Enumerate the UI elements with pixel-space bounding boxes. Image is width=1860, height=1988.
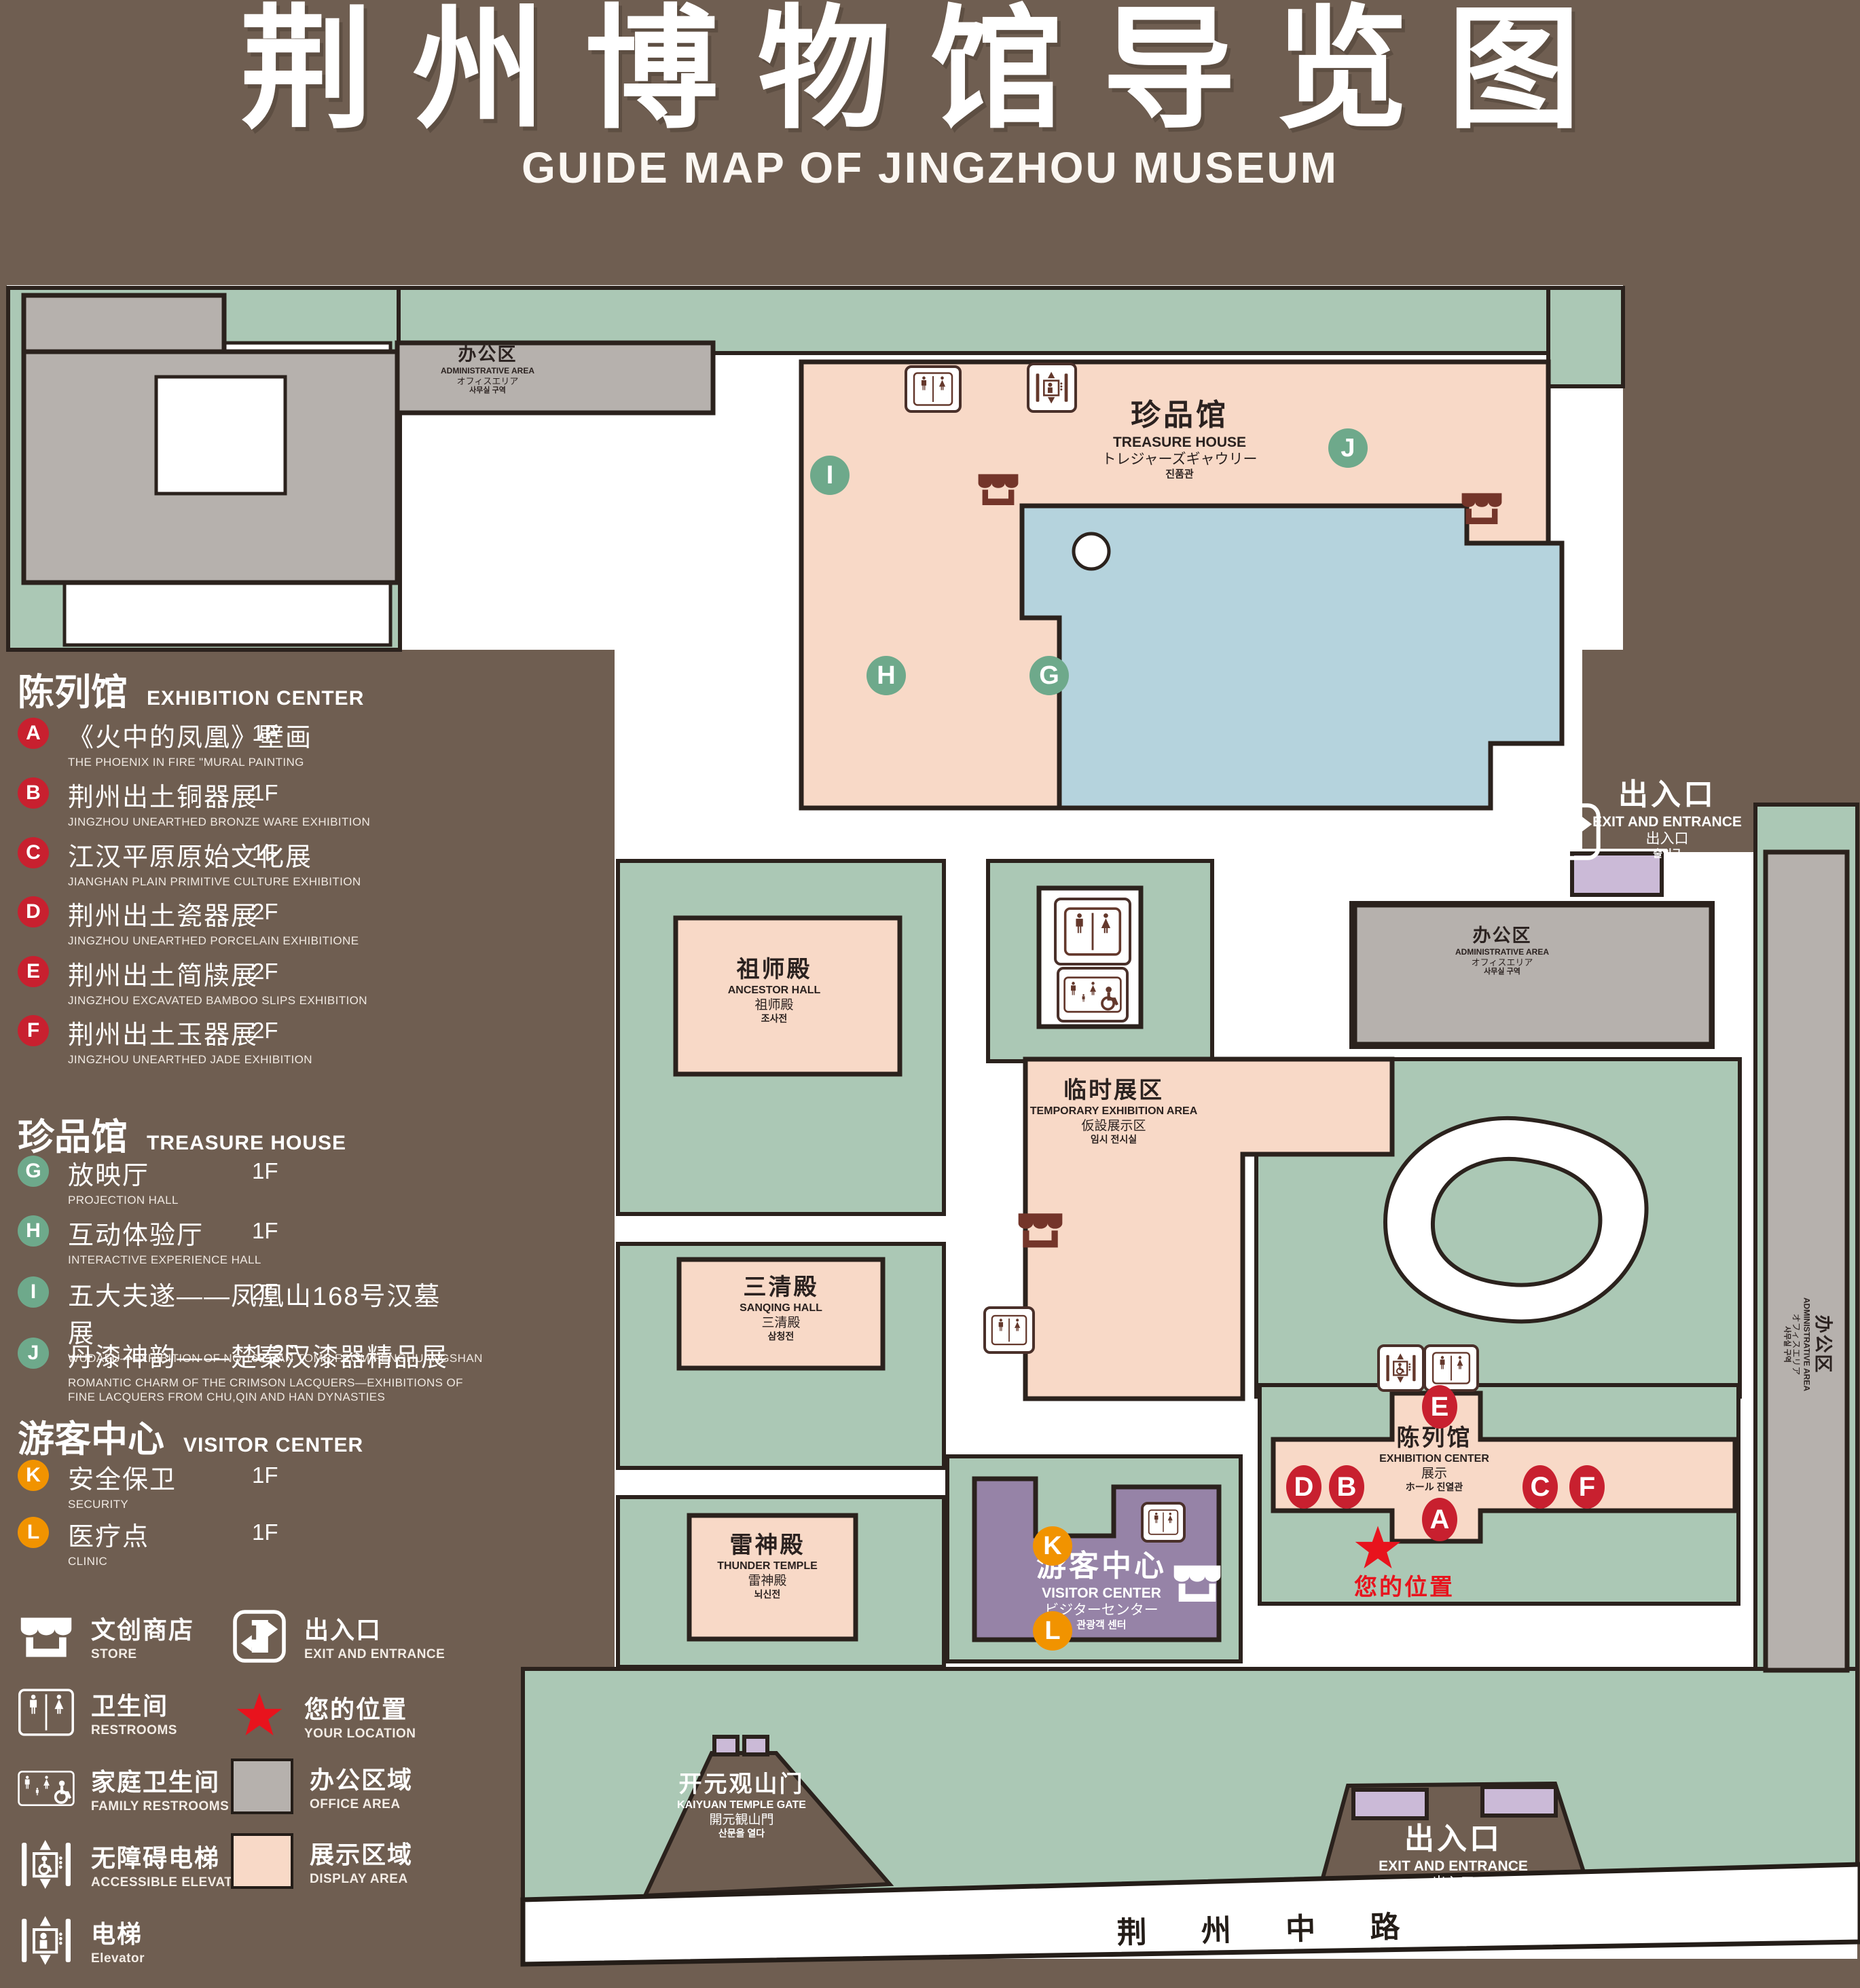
- area-label-sanqing-hall: 三清殿 SANQING HALL 三清殿 삼청전: [740, 1274, 822, 1342]
- exit-icon: [231, 1608, 288, 1665]
- store-icon: [975, 468, 1021, 509]
- floor-badge: 2F: [252, 1279, 278, 1305]
- legend-section-exhibition-center: 陈列馆EXHIBITION CENTER: [18, 662, 364, 716]
- legend-badge-D: D: [18, 896, 49, 927]
- legend-symbol-display-area: 展示区域DISPLAY AREA: [231, 1833, 413, 1889]
- area-label-temporary-area: 临时展区 TEMPORARY EXHIBITION AREA 仮設展示区 임시 …: [1030, 1077, 1198, 1145]
- floor-badge: 1F: [252, 720, 278, 746]
- your-location-label: 您的位置: [1354, 1568, 1455, 1602]
- legend-badge-L: L: [18, 1517, 49, 1548]
- map-marker-G: G: [1029, 656, 1069, 695]
- map-marker-D: D: [1286, 1465, 1321, 1509]
- garden-island: [1433, 1159, 1601, 1285]
- legend-item-B: B 荆州出土铜器展JINGZHOU UNEARTHED BRONZE WARE …: [18, 776, 466, 829]
- your-location-star-icon: [1353, 1525, 1403, 1572]
- legend-section-visitor-center: 游客中心VISITOR CENTER: [18, 1409, 363, 1462]
- legend-symbol-restrooms: 卫生间RESTROOMS: [18, 1684, 177, 1741]
- legend-symbol-accessible-elevator: 无障碍电梯ACCESSIBLE ELEVATOR: [18, 1836, 253, 1893]
- legend-item-A: A 《火中的凤凰》壁画THE PHOENIX IN FIRE "MURAL PA…: [18, 716, 466, 769]
- map-marker-B: B: [1329, 1465, 1364, 1509]
- legend-badge-A: A: [18, 718, 49, 749]
- floor-badge: 1F: [252, 840, 278, 866]
- legend-item-G: G 放映厅PROJECTION HALL 1F: [18, 1154, 466, 1207]
- legend-badge-F: F: [18, 1015, 49, 1046]
- elevator-icon: [1377, 1344, 1425, 1392]
- restroom-icon: [983, 1306, 1035, 1354]
- legend-symbol-family-restrooms: 家庭卫生间FAMILY RESTROOMS: [18, 1760, 229, 1817]
- building-admin-nw-top: [24, 295, 224, 353]
- display-area-swatch: [231, 1833, 293, 1889]
- store-icon: [1169, 1559, 1225, 1606]
- legend-symbol-office-area: 办公区域OFFICE AREA: [231, 1759, 413, 1814]
- floor-badge: 2F: [252, 959, 278, 984]
- legend-item-K: K 安全保卫SECURITY 1F: [18, 1458, 466, 1511]
- legend-item-L: L 医疗点CLINIC 1F: [18, 1515, 466, 1568]
- legend-item-F: F 荆州出土玉器展JINGZHOU UNEARTHED JADE EXHIBIT…: [18, 1014, 466, 1067]
- legend-badge-J: J: [18, 1338, 49, 1369]
- legend-symbol-exit: 出入口EXIT AND ENTRANCE: [231, 1608, 445, 1665]
- family-restroom-icon: [18, 1760, 75, 1817]
- legend-badge-E: E: [18, 956, 49, 987]
- area-label-kaiyuan-gate: 开元观山门 KAIYUAN TEMPLE GATE 開元観山門 산문을 열다: [677, 1771, 806, 1839]
- store-icon: [18, 1608, 75, 1665]
- legend-item-D: D 荆州出土瓷器展JINGZHOU UNEARTHED PORCELAIN EX…: [18, 895, 466, 948]
- area-label-admin-east: 办公区 ADMINISTRATIVE AREA オフィスエリア 사무실 구역: [1455, 925, 1549, 977]
- floor-badge: 1F: [252, 780, 278, 806]
- map-marker-A: A: [1422, 1498, 1457, 1541]
- map-marker-H: H: [867, 656, 906, 695]
- restroom-icon: [18, 1684, 75, 1741]
- restroom-icon: [1423, 1344, 1479, 1392]
- area-label-treasure-house: 珍品馆 TREASURE HOUSE トレジャーズギャウリー 진품관: [1102, 397, 1258, 481]
- legend-item-C: C 江汉平原原始文化展JIANGHAN PLAIN PRIMITIVE CULT…: [18, 836, 466, 889]
- legend-badge-G: G: [18, 1156, 49, 1187]
- accessible-elevator-icon: [18, 1836, 75, 1893]
- area-label-admin-strip: 办公区 ADMINISTRATIVE AREA オフィスエリア 사무실 구역: [1782, 1297, 1834, 1391]
- map-marker-C: C: [1522, 1465, 1558, 1509]
- building-admin-strip: [1766, 852, 1847, 1670]
- floor-badge: 2F: [252, 1018, 278, 1044]
- family-restroom-icon: [1057, 967, 1129, 1023]
- elevator-icon: [1027, 363, 1077, 413]
- legend-badge-K: K: [18, 1460, 49, 1491]
- store-icon: [1015, 1207, 1066, 1252]
- area-label-ancestor-hall: 祖师殿 ANCESTOR HALL 祖师殿 조사전: [728, 956, 821, 1025]
- admin-nw-notch: [156, 377, 285, 494]
- map-marker-F: F: [1569, 1465, 1605, 1509]
- restroom-icon: [1054, 898, 1131, 965]
- your-location-star-icon: [231, 1687, 288, 1744]
- legend-symbol-your-location: 您的位置YOUR LOCATION: [231, 1687, 416, 1744]
- pond-dot: [1074, 534, 1109, 569]
- area-label-exit-east: 出入口 EXIT AND ENTRANCE 出入口 출입구: [1592, 777, 1742, 860]
- map-marker-J: J: [1328, 428, 1368, 468]
- elevator-icon: [18, 1912, 75, 1969]
- map-marker-I: I: [810, 456, 850, 495]
- map-marker-E: E: [1422, 1385, 1457, 1429]
- restroom-icon: [1141, 1502, 1186, 1543]
- area-label-exit-south: 出入口 EXIT AND ENTRANCE 出入口 출입구: [1379, 1821, 1528, 1904]
- map-marker-K: K: [1033, 1526, 1072, 1566]
- floor-badge: 1F: [252, 1218, 278, 1244]
- legend-item-H: H 互动体验厅INTERACTIVE EXPERIENCE HALL 1F: [18, 1214, 466, 1267]
- area-label-thunder-temple: 雷神殿 THUNDER TEMPLE 雷神殿 뇌신전: [717, 1532, 818, 1600]
- legend-item-E: E 荆州出土简牍展JINGZHOU EXCAVATED BAMBOO SLIPS…: [18, 955, 466, 1008]
- floor-badge: 1F: [252, 1158, 278, 1184]
- office-area-swatch: [231, 1759, 293, 1814]
- legend-symbol-store: 文创商店STORE: [18, 1608, 194, 1665]
- floor-badge: 1-2F: [252, 1340, 298, 1366]
- legend-badge-H: H: [18, 1215, 49, 1247]
- legend-badge-I: I: [18, 1276, 49, 1308]
- road-label: 荆 州 中 路: [1116, 1902, 1423, 1951]
- legend-badge-C: C: [18, 837, 49, 868]
- area-label-admin-nw: 办公区 ADMINISTRATIVE AREA オフィスエリア 사무실 구역: [441, 344, 534, 396]
- legend-item-J: J 丹漆神韵——楚秦汉漆器精品展ROMANTIC CHARM OF THE CR…: [18, 1336, 466, 1405]
- store-icon: [1459, 487, 1505, 528]
- floor-badge: 1F: [252, 1520, 278, 1545]
- map-marker-L: L: [1033, 1611, 1072, 1651]
- legend-section-treasure-house: 珍品馆TREASURE HOUSE: [18, 1107, 346, 1160]
- restroom-icon: [905, 365, 962, 413]
- floor-badge: 2F: [252, 899, 278, 925]
- floor-badge: 1F: [252, 1462, 278, 1488]
- legend-badge-B: B: [18, 777, 49, 809]
- area-label-exhibition-center: 陈列馆 EXHIBITION CENTER 展示 ホール 진열관: [1379, 1424, 1489, 1493]
- legend-symbol-elevator: 电梯Elevator: [18, 1912, 145, 1969]
